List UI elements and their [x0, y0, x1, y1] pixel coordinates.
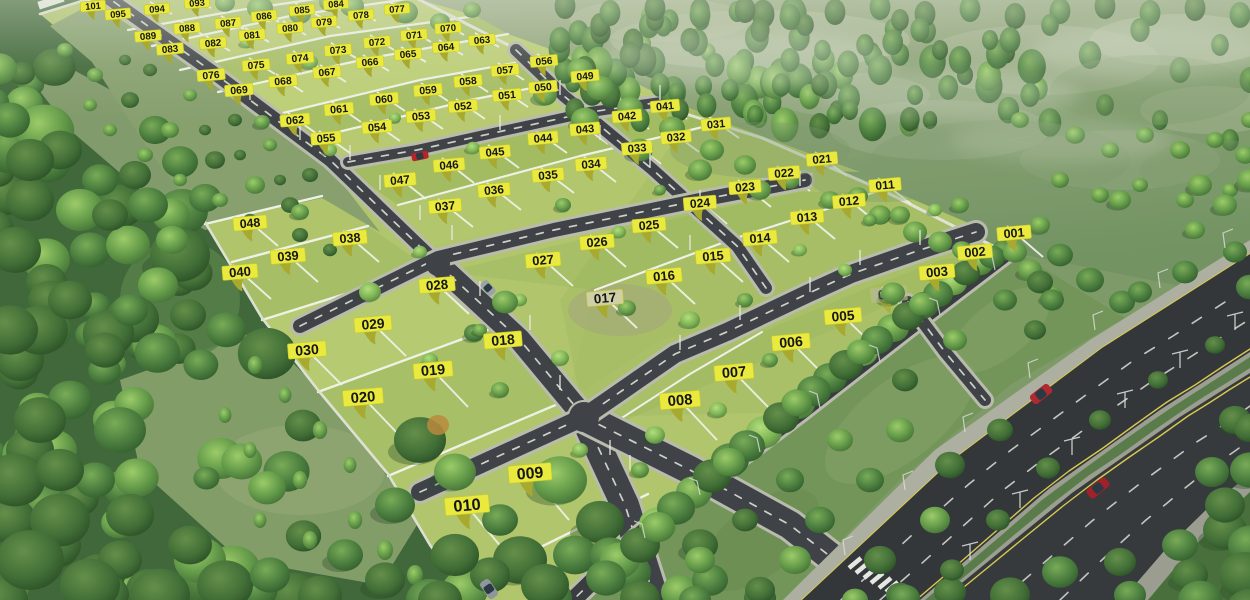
svg-text:015: 015 [702, 247, 725, 264]
svg-text:001: 001 [1003, 225, 1025, 241]
svg-text:052: 052 [454, 100, 473, 114]
svg-text:060: 060 [375, 93, 394, 107]
svg-text:056: 056 [535, 56, 553, 68]
svg-text:059: 059 [419, 84, 438, 97]
svg-text:070: 070 [440, 23, 457, 35]
svg-text:012: 012 [838, 193, 860, 209]
svg-text:005: 005 [831, 308, 855, 325]
svg-text:003: 003 [925, 264, 948, 281]
svg-text:030: 030 [295, 342, 320, 360]
svg-text:078: 078 [353, 10, 370, 22]
svg-text:093: 093 [189, 0, 205, 9]
svg-text:038: 038 [339, 231, 361, 247]
svg-text:011: 011 [875, 177, 896, 193]
svg-text:043: 043 [575, 123, 594, 137]
svg-text:066: 066 [361, 57, 379, 69]
svg-text:002: 002 [964, 243, 987, 260]
svg-text:101: 101 [85, 1, 101, 12]
svg-text:067: 067 [318, 67, 336, 79]
svg-text:062: 062 [285, 114, 304, 128]
svg-text:069: 069 [230, 84, 249, 97]
svg-text:040: 040 [228, 264, 251, 281]
svg-text:031: 031 [706, 118, 725, 132]
svg-text:061: 061 [330, 103, 349, 117]
svg-text:047: 047 [390, 172, 411, 188]
svg-text:041: 041 [656, 100, 675, 114]
svg-text:080: 080 [282, 23, 299, 35]
svg-text:089: 089 [139, 31, 157, 43]
svg-text:068: 068 [274, 76, 292, 88]
svg-text:022: 022 [774, 166, 795, 181]
svg-text:076: 076 [202, 70, 220, 82]
svg-text:044: 044 [533, 132, 553, 146]
svg-text:025: 025 [638, 217, 660, 233]
svg-text:057: 057 [496, 65, 514, 77]
svg-text:008: 008 [667, 392, 693, 410]
svg-text:055: 055 [316, 132, 336, 146]
svg-text:086: 086 [256, 11, 273, 23]
svg-text:042: 042 [617, 110, 636, 124]
svg-text:023: 023 [735, 179, 756, 195]
svg-text:017: 017 [593, 290, 617, 307]
svg-text:063: 063 [473, 35, 491, 47]
svg-text:024: 024 [689, 195, 711, 211]
svg-text:035: 035 [538, 168, 559, 183]
svg-text:045: 045 [485, 146, 506, 160]
svg-text:064: 064 [437, 42, 455, 54]
svg-text:020: 020 [350, 389, 376, 407]
svg-text:073: 073 [329, 45, 347, 57]
svg-text:058: 058 [459, 76, 477, 88]
svg-text:049: 049 [576, 71, 594, 83]
svg-text:077: 077 [389, 3, 406, 15]
svg-text:094: 094 [149, 2, 166, 14]
svg-text:029: 029 [361, 316, 386, 333]
svg-text:026: 026 [586, 235, 608, 251]
svg-text:046: 046 [439, 158, 460, 173]
svg-text:082: 082 [204, 38, 222, 50]
svg-text:009: 009 [516, 464, 544, 483]
svg-text:010: 010 [453, 496, 482, 516]
svg-text:054: 054 [367, 121, 387, 135]
svg-text:071: 071 [406, 30, 424, 42]
svg-text:027: 027 [532, 252, 555, 269]
svg-text:019: 019 [420, 362, 446, 380]
svg-text:065: 065 [399, 49, 417, 61]
svg-text:014: 014 [749, 231, 771, 247]
svg-text:036: 036 [484, 182, 505, 198]
svg-text:074: 074 [291, 53, 309, 65]
svg-text:087: 087 [220, 18, 237, 30]
svg-text:007: 007 [721, 364, 747, 382]
svg-text:018: 018 [491, 331, 516, 349]
svg-text:039: 039 [277, 247, 300, 264]
svg-text:033: 033 [627, 142, 647, 156]
svg-text:053: 053 [411, 110, 430, 124]
svg-text:083: 083 [161, 44, 179, 56]
svg-text:013: 013 [796, 209, 818, 225]
svg-text:034: 034 [581, 157, 602, 172]
svg-text:050: 050 [534, 81, 553, 94]
svg-text:006: 006 [779, 333, 804, 351]
svg-text:028: 028 [425, 277, 448, 294]
svg-text:079: 079 [316, 17, 333, 29]
svg-text:085: 085 [294, 4, 311, 16]
svg-text:032: 032 [666, 131, 686, 145]
svg-text:081: 081 [244, 30, 262, 42]
svg-text:084: 084 [328, 0, 345, 10]
svg-text:095: 095 [110, 8, 127, 20]
svg-text:072: 072 [368, 37, 386, 49]
svg-text:037: 037 [434, 198, 456, 214]
svg-text:051: 051 [498, 89, 517, 103]
svg-text:088: 088 [179, 23, 197, 35]
svg-text:048: 048 [239, 215, 261, 231]
svg-text:021: 021 [812, 153, 833, 167]
svg-text:016: 016 [652, 268, 675, 285]
svg-text:075: 075 [247, 60, 265, 72]
